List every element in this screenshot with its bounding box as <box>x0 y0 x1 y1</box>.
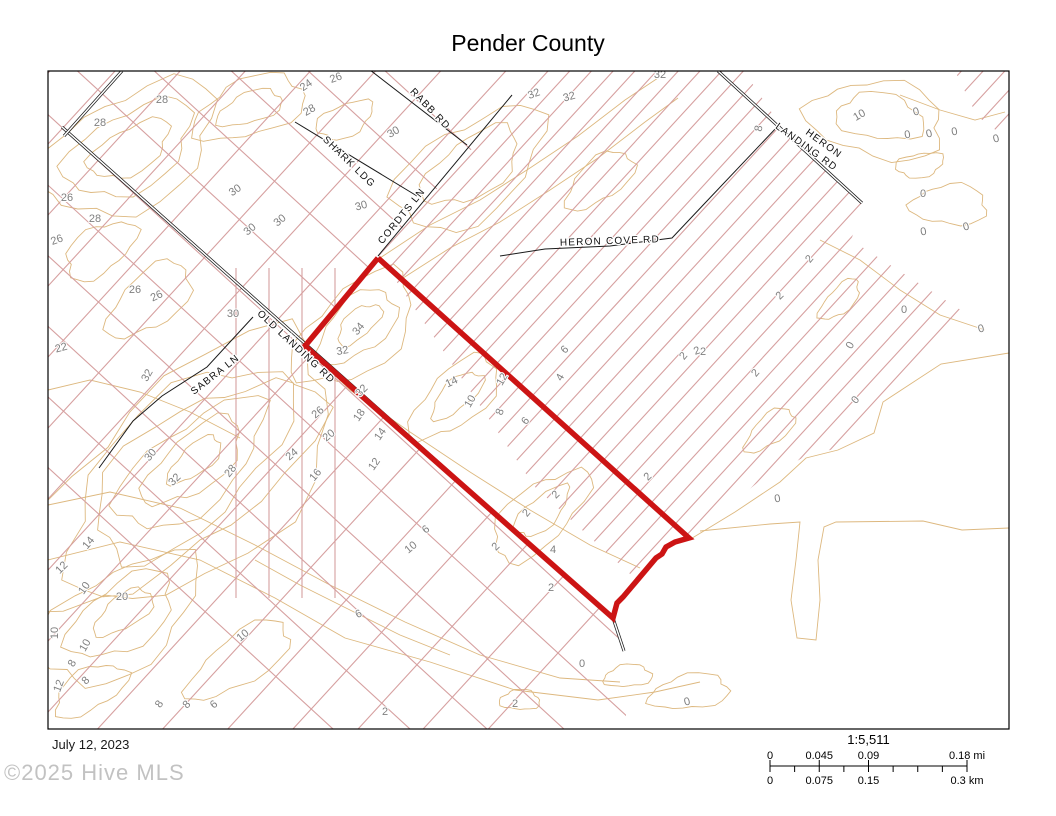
elevation-label: 0 <box>920 188 926 200</box>
parcel-lines-corner-patch <box>887 0 1056 182</box>
elevation-label: 0 <box>773 493 781 506</box>
elevation-label: 2 <box>549 488 562 501</box>
scale-km-label: 0.15 <box>858 775 879 787</box>
elevation-label: 30 <box>227 308 239 320</box>
elevation-label: 26 <box>61 192 73 204</box>
elevation-label: 32 <box>562 90 577 105</box>
parcel-lines-left-cross <box>0 0 960 816</box>
elevation-label: 26 <box>49 232 65 247</box>
parcel-lines-right-dense <box>335 0 1056 617</box>
scale-km-label: 0 <box>767 775 773 787</box>
elevation-label: 6 <box>519 415 532 427</box>
elevation-label: 8 <box>66 658 79 669</box>
elevation-label: 26 <box>310 404 327 421</box>
elevation-label: 30 <box>385 124 402 141</box>
elevation-label: 28 <box>156 94 168 106</box>
elevation-label: 8 <box>493 407 506 417</box>
elevation-label: 6 <box>208 698 220 711</box>
elevation-label: 0 <box>849 394 862 406</box>
elevation-label: 2 <box>512 698 518 710</box>
copyright-text: ©2025 Hive MLS <box>4 760 185 786</box>
elevation-label: 0 <box>903 129 911 142</box>
elevation-label: 8 <box>753 124 766 132</box>
scale-km-label: 0.075 <box>805 775 833 787</box>
contour-lines <box>21 72 1009 718</box>
elevation-label: 32 <box>335 344 349 358</box>
elevation-label: 10 <box>77 637 94 654</box>
scale-ratio: 1:5,511 <box>847 732 889 747</box>
elevation-label: 0 <box>992 133 1001 146</box>
elevation-label: 8 <box>180 698 193 711</box>
elevation-label: 2 <box>520 507 533 519</box>
elevation-label: 12 <box>51 678 66 694</box>
elevation-label: 10 <box>403 539 420 556</box>
elevation-label: 30 <box>354 199 369 214</box>
elevation-label: 28 <box>301 102 318 119</box>
heron-cove-rd-label: HERON COVE RD <box>560 234 660 248</box>
elevation-label: 2 <box>548 582 554 594</box>
elevation-label: 18 <box>351 407 368 424</box>
rabb-rd-label: RABB RD <box>407 86 452 132</box>
elevation-label: 30 <box>227 182 244 199</box>
elevation-label: 6 <box>558 343 571 356</box>
elevation-label: 16 <box>307 467 324 484</box>
elevation-label: 28 <box>222 463 239 480</box>
map-date: July 12, 2023 <box>52 737 129 752</box>
cordts-ln-label: CORDTS LN <box>376 186 428 246</box>
elevation-label: 6 <box>420 523 432 536</box>
elevation-label: 12 <box>366 456 383 473</box>
elevation-label: 0 <box>683 696 692 709</box>
elevation-label: 0 <box>977 323 986 336</box>
elevation-label: 26 <box>328 70 344 85</box>
elevation-label: 2 <box>677 350 690 362</box>
elevation-label: 2 <box>489 540 502 553</box>
elevation-label: 2 <box>382 706 388 718</box>
elevation-label: 0 <box>844 340 857 351</box>
sabra-ln <box>99 317 253 468</box>
elevation-label: 24 <box>298 77 315 94</box>
elevation-label: 0 <box>901 304 907 316</box>
elevation-label: 10 <box>49 627 61 639</box>
elevation-label: 24 <box>284 446 301 463</box>
elevation-label: 0 <box>925 128 934 141</box>
elevation-label: 32 <box>139 367 156 384</box>
roads <box>62 70 862 651</box>
scale-km-label: 0.3 km <box>950 775 983 787</box>
elevation-label: 4 <box>554 372 567 383</box>
elevation-label: 2 <box>641 470 654 483</box>
elevation-label: 20 <box>116 591 128 603</box>
elevation-label: 0 <box>912 106 921 119</box>
scalebar-svg: 1:5,51100.0450.090.18 mi00.0750.150.3 km <box>754 728 1014 792</box>
elevation-label: 0 <box>579 658 585 670</box>
elevation-label: 10 <box>851 107 868 124</box>
elevation-label: 0 <box>962 221 971 234</box>
elevation-label: 30 <box>142 447 159 464</box>
rabb-rd <box>370 70 467 145</box>
elevation-label: 4 <box>550 544 556 556</box>
elevation-label: 28 <box>94 117 106 129</box>
elevation-label: 14 <box>444 374 460 390</box>
elevation-label: 14 <box>372 426 389 443</box>
elevation-label: 2 <box>749 367 762 379</box>
elevation-label: 26 <box>129 284 141 296</box>
shark-ldg-label: SHARK LDG <box>320 134 377 190</box>
elevation-label: 2 <box>700 346 706 358</box>
scalebar: 1:5,51100.0450.090.18 mi00.0750.150.3 km <box>754 728 1014 792</box>
elevation-label: 8 <box>153 698 166 710</box>
elevation-label: 30 <box>272 212 289 229</box>
elevation-label: 32 <box>526 86 542 101</box>
old-landing-rd <box>62 127 624 651</box>
mls-map-report: Pender County 28282628262426283030303030… <box>0 0 1056 816</box>
map-svg: 2828262826242628303030303032323226263022… <box>0 0 1056 816</box>
elevation-label: 14 <box>80 535 97 552</box>
elevation-label: 0 <box>919 226 927 239</box>
elevation-label: 0 <box>950 126 958 139</box>
elevation-label: 28 <box>89 213 101 225</box>
